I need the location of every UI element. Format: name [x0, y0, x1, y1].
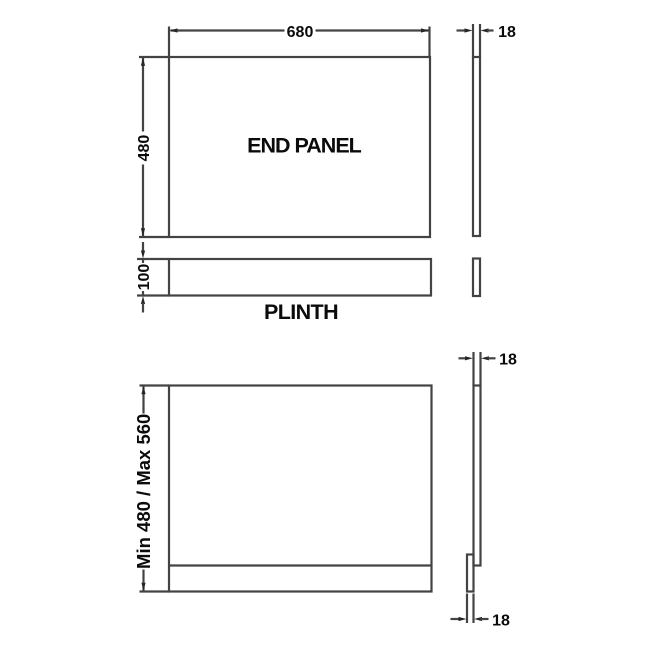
svg-text:PLINTH: PLINTH — [264, 300, 338, 324]
svg-text:18: 18 — [492, 612, 510, 629]
svg-text:100: 100 — [136, 264, 153, 291]
svg-text:480: 480 — [136, 135, 153, 162]
svg-text:Min 480 / Max 560: Min 480 / Max 560 — [133, 414, 154, 569]
svg-text:680: 680 — [287, 24, 314, 41]
svg-text:END PANEL: END PANEL — [247, 134, 362, 158]
svg-text:18: 18 — [499, 352, 517, 369]
svg-text:18: 18 — [498, 24, 516, 41]
